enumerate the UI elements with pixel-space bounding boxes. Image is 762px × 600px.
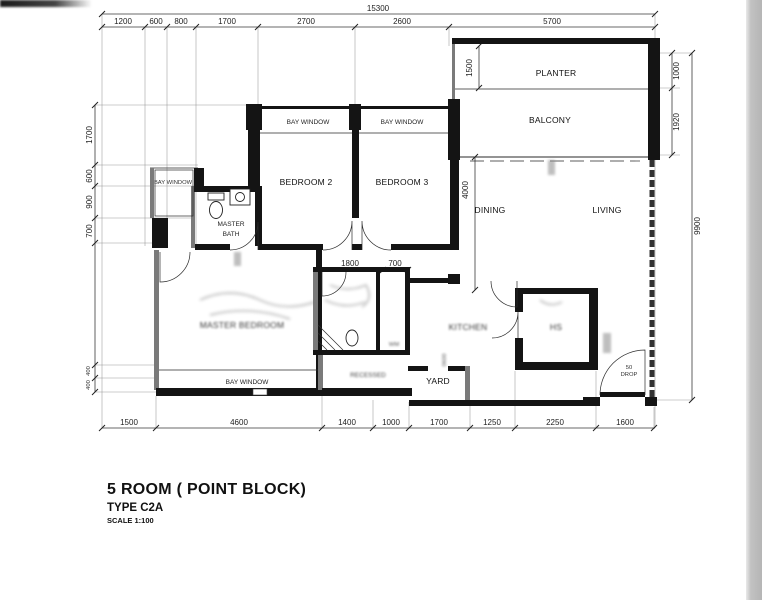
basin-bowl-icon (236, 193, 245, 202)
label-yard-tag: 0600 (442, 354, 448, 367)
dim-dining-depth: 4000 (461, 181, 470, 199)
dim-bath-width: 1800 (341, 259, 359, 268)
dim-bot-4: 1000 (382, 418, 400, 427)
room-label-wm: WM (389, 342, 399, 348)
room-label-hs: HS (550, 322, 562, 332)
dim-bot-6: 1250 (483, 418, 501, 427)
room-label-bedroom3: BEDROOM 3 (376, 177, 429, 187)
dim-top-6: 2600 (393, 17, 411, 26)
room-label-baywindow-bd2: BAY WINDOW (287, 119, 331, 126)
room-label-baywindow-master: BAY WINDOW (226, 379, 270, 386)
dimension-labels: 15300 1200 600 800 1700 2700 2600 5700 1… (85, 4, 702, 427)
door-arc-bedroom2 (323, 221, 352, 250)
dim-bot-8: 1600 (616, 418, 634, 427)
room-label-masterbedroom: MASTER BEDROOM (200, 320, 285, 330)
dim-left-2: 600 (85, 169, 94, 183)
dim-bot-1: 1500 (120, 418, 138, 427)
dim-bot-7: 2250 (546, 418, 564, 427)
room-label-masterbath-1: MASTER (217, 221, 244, 228)
dim-left-4: 700 (85, 224, 94, 238)
dim-left-5: 400 (86, 366, 92, 376)
dim-bath-adj: 700 (388, 259, 402, 268)
room-label-bedroom2: BEDROOM 2 (280, 177, 333, 187)
title-block: 5 ROOM ( POINT BLOCK) TYPE C2A SCALE 1:1… (107, 481, 306, 525)
dim-right-overall: 9900 (693, 217, 702, 235)
dim-left-6: 400 (86, 380, 92, 390)
plan-title: 5 ROOM ( POINT BLOCK) (107, 481, 306, 499)
room-label-living: LIVING (592, 205, 621, 215)
toilet-tank-icon (208, 193, 224, 200)
dim-overall-top: 15300 (367, 4, 390, 13)
room-label-kitchen: KITCHEN (449, 322, 488, 332)
toilet2-icon (346, 330, 358, 346)
door-arc-masterbedroom (160, 252, 190, 282)
dim-right-1: 1000 (672, 62, 681, 80)
dim-top-2: 600 (149, 17, 163, 26)
room-label-baywindow-left: BAY WINDOW (154, 180, 193, 186)
dim-top-5: 2700 (297, 17, 315, 26)
window-marker (253, 389, 267, 395)
door-tag-smudge-balcony (548, 160, 555, 175)
room-label-balcony: BALCONY (529, 115, 571, 125)
door-arc-hs (492, 312, 518, 338)
dim-planter-depth: 1500 (465, 59, 474, 77)
dim-right-2: 1920 (672, 113, 681, 131)
door-arc-bedroom3 (362, 221, 391, 250)
dim-top-1: 1200 (114, 17, 132, 26)
room-label-recessed: RECESSED (350, 372, 386, 379)
floorplan-page: 15300 1200 600 800 1700 2700 2600 5700 1… (0, 0, 762, 600)
dim-top-3: 800 (174, 17, 188, 26)
room-label-baywindow-bd3: BAY WINDOW (381, 119, 425, 126)
room-label-masterbath-2: BATH (223, 231, 240, 238)
dim-left-3: 900 (85, 195, 94, 209)
dim-top-7: 5700 (543, 17, 561, 26)
label-drop-2: DROP (621, 372, 638, 378)
furniture-sketch (200, 285, 562, 319)
room-label-planter: PLANTER (536, 68, 577, 78)
label-smudge-right (603, 333, 611, 353)
dim-bot-2: 4600 (230, 418, 248, 427)
dim-bot-3: 1400 (338, 418, 356, 427)
label-drop-1: 50 (626, 365, 632, 371)
door-arc-kitchen (491, 281, 517, 307)
plan-scale: SCALE 1:100 (107, 516, 306, 525)
room-labels: PLANTER BALCONY BAY WINDOW BAY WINDOW BE… (154, 68, 638, 386)
toilet-icon (210, 202, 223, 219)
extension-lines (95, 14, 692, 428)
door-tag-smudge-masterbath (234, 252, 241, 266)
room-label-dining: DINING (475, 205, 506, 215)
dim-bot-5: 1700 (430, 418, 448, 427)
dimension-lines (92, 11, 695, 431)
door-arc-bath2 (322, 272, 346, 296)
plan-type: TYPE C2A (107, 502, 306, 514)
room-label-yard: YARD (426, 376, 450, 386)
dim-top-4: 1700 (218, 17, 236, 26)
dim-left-1: 1700 (85, 126, 94, 144)
